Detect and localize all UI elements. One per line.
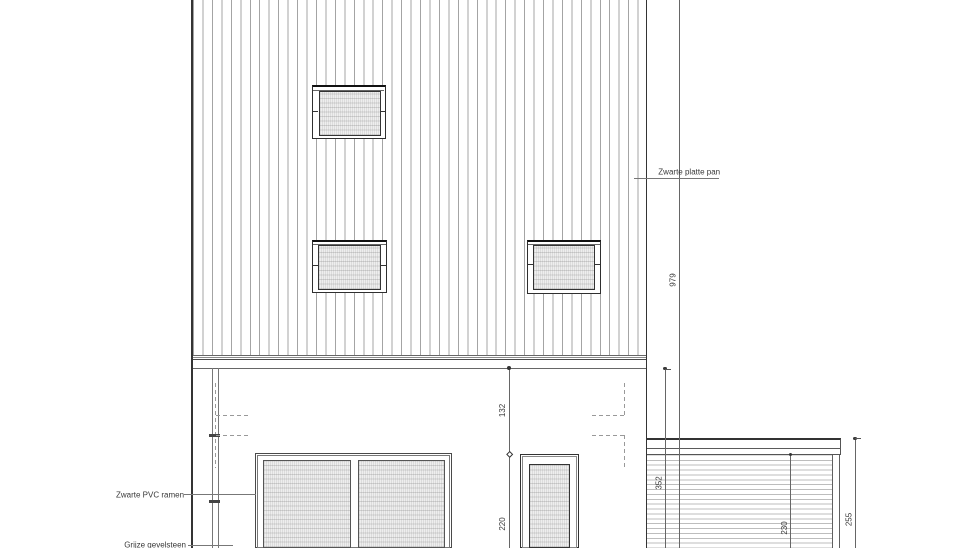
svg-text:Zwarte platte pan: Zwarte platte pan [658,168,720,177]
svg-text:979: 979 [668,273,677,287]
svg-text:132: 132 [498,403,507,417]
svg-text:Zwarte PVC ramen: Zwarte PVC ramen [116,490,184,499]
svg-text:230: 230 [780,521,789,535]
svg-text:Grijze gevelsteen: Grijze gevelsteen [124,540,186,548]
svg-text:255: 255 [845,512,854,526]
svg-text:220: 220 [498,517,507,531]
svg-text:352: 352 [655,476,664,490]
